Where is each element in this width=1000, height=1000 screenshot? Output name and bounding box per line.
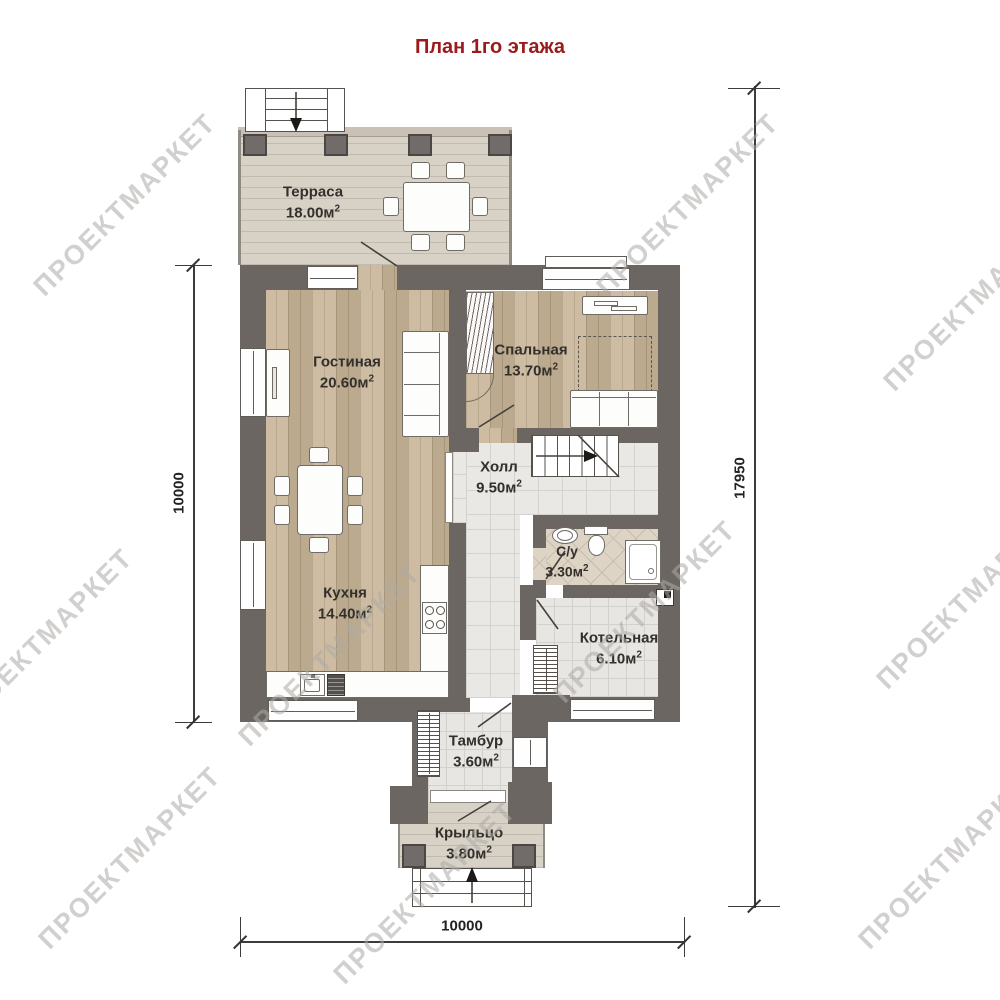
- shower-tray: [629, 544, 657, 580]
- kitchen-chair: [347, 476, 363, 496]
- room-label-living: Гостиная 20.60м2: [313, 352, 381, 395]
- window-kitchen-left: [240, 540, 266, 610]
- terrace-chair: [411, 162, 430, 179]
- watermark: ПРОЕКТМАРКЕТ: [33, 761, 228, 956]
- room-label-vestibule: Тамбур 3.60м2: [449, 731, 503, 774]
- page-title: План 1го этажа: [415, 36, 565, 59]
- entrance-threshold: [430, 790, 506, 803]
- hall-staircase: [531, 435, 619, 477]
- kitchen-chair: [347, 505, 363, 525]
- dimension-value-left: 10000: [171, 472, 188, 514]
- window-living-left: [240, 348, 266, 417]
- shower-drain: [648, 568, 654, 574]
- terrace-chair: [411, 234, 430, 251]
- vestibule-radiator: [417, 710, 440, 777]
- room-label-hall: Холл 9.50м2: [476, 457, 522, 500]
- terrace-column: [488, 134, 512, 156]
- bedroom-sofa: [570, 390, 658, 428]
- kitchen-faucet: [311, 674, 315, 678]
- toilet-tank: [584, 526, 608, 535]
- kitchen-appliance: [327, 674, 345, 696]
- window-bedroom-sill: [545, 256, 627, 268]
- wall-right: [658, 267, 680, 712]
- kitchen-chair: [274, 505, 290, 525]
- wall-bathroom-bottom: [563, 585, 658, 598]
- boiler-unit-mark: [664, 591, 671, 598]
- terrace-rail-left: [238, 130, 241, 265]
- terrace-column: [324, 134, 348, 156]
- kitchen-chair: [309, 537, 329, 553]
- wall-left: [240, 265, 266, 722]
- kitchen-sink-basin: [304, 679, 320, 692]
- dimension-value-bottom: 10000: [441, 918, 483, 935]
- window-bedroom: [542, 268, 630, 290]
- bathroom-sink-basin: [557, 530, 573, 541]
- wardrobe: [466, 292, 494, 374]
- window-kitchen-bottom: [268, 700, 358, 721]
- terrace-chair: [383, 197, 399, 216]
- floor-plan: План 1го этажа: [0, 0, 1000, 1000]
- wall-porch-block-left: [390, 786, 428, 824]
- window-living-terrace: [307, 266, 358, 289]
- dimension-value-right: 17950: [732, 457, 749, 499]
- room-label-boiler: Котельная 6.10м2: [580, 628, 659, 671]
- tv-stand-detail: [272, 367, 277, 399]
- passage-floor: [453, 452, 466, 523]
- watermark: ПРОЕКТМАРКЕТ: [871, 501, 1000, 696]
- watermark: ПРОЕКТМАРКЕТ: [853, 761, 1000, 956]
- watermark: ПРОЕКТМАРКЕТ: [878, 203, 1000, 398]
- terrace-chair: [472, 197, 488, 216]
- kitchen-counter-bottom: [266, 671, 449, 698]
- passage-threshold: [445, 452, 453, 523]
- wall-bedroom-door-stub: [449, 428, 479, 452]
- terrace-deck: [238, 127, 512, 265]
- room-label-terrace: Терраса 18.00м2: [283, 182, 343, 225]
- porch-column: [512, 844, 536, 868]
- wall-bathroom-left-upper: [533, 515, 546, 548]
- terrace-stairs: [245, 88, 345, 132]
- terrace-door-opening: [358, 265, 397, 290]
- terrace-chair: [446, 234, 465, 251]
- corridor-floor: [466, 515, 520, 698]
- terrace-column: [243, 134, 267, 156]
- dimension-line-right: [754, 86, 756, 908]
- window-boiler: [570, 699, 655, 720]
- room-label-bathroom: С/у 3.30м2: [545, 542, 588, 582]
- bathroom-door-floor: [533, 548, 546, 580]
- kitchen-table: [297, 465, 343, 535]
- bed-outline: [578, 336, 652, 392]
- bedroom-doorway-floor: [477, 428, 517, 443]
- porch-column: [402, 844, 426, 868]
- terrace-chair: [446, 162, 465, 179]
- room-label-porch: Крыльцо 3.80м2: [435, 823, 503, 866]
- room-label-kitchen: Кухня 14.40м2: [318, 583, 372, 626]
- wall-kitchen-corridor: [449, 523, 466, 710]
- terrace-table: [403, 182, 470, 232]
- terrace-column: [408, 134, 432, 156]
- kitchen-chair: [309, 447, 329, 463]
- boiler-vent-radiator: [533, 645, 558, 694]
- kitchen-chair: [274, 476, 290, 496]
- wall-porch-block-right: [508, 782, 552, 824]
- room-label-bedroom: Спальная 13.70м2: [494, 340, 567, 383]
- wall-corridor-boiler: [520, 585, 536, 640]
- toilet-bowl: [588, 535, 605, 556]
- watermark: ПРОЕКТМАРКЕТ: [0, 543, 139, 738]
- tv-stand: [266, 349, 290, 417]
- dimension-line-left: [193, 265, 195, 722]
- dresser-handle: [611, 306, 637, 311]
- window-vestibule: [513, 737, 547, 768]
- dimension-line-bottom: [240, 941, 684, 943]
- porch-steps: [412, 868, 532, 907]
